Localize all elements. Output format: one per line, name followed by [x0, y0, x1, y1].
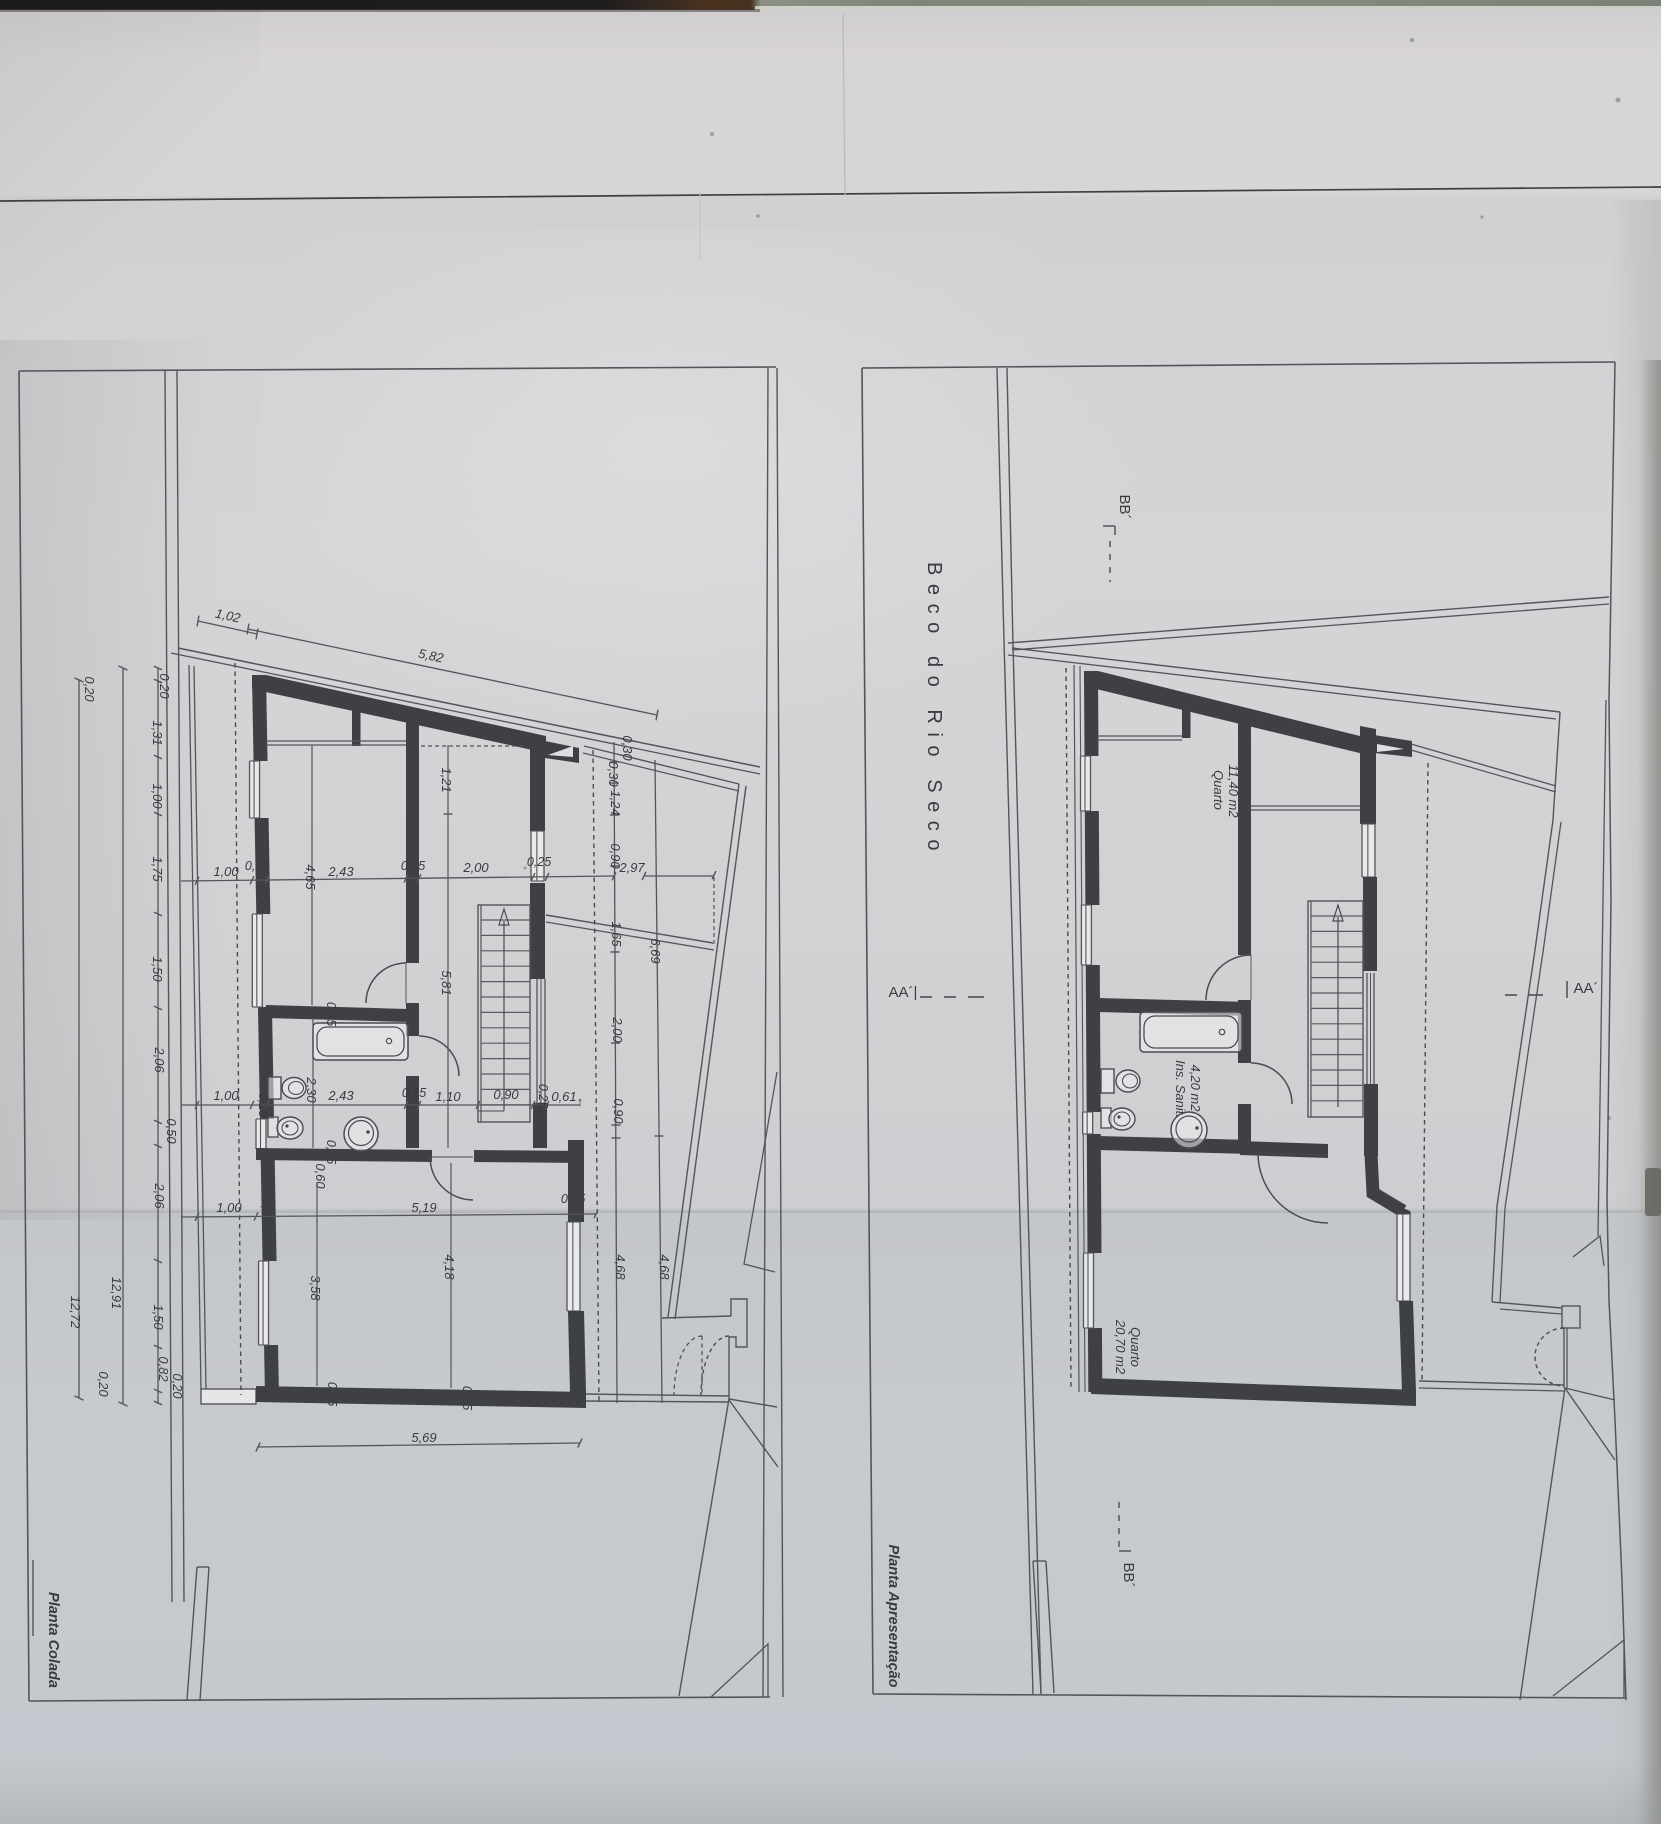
- svg-text:0,25: 0,25: [256, 1093, 270, 1117]
- svg-text:Quarto: Quarto: [1128, 1327, 1143, 1367]
- svg-text:Planta Apresentação: Planta Apresentação: [885, 1545, 901, 1688]
- svg-text:2,00: 2,00: [462, 860, 489, 875]
- svg-text:5,19: 5,19: [411, 1200, 436, 1215]
- svg-text:0,90: 0,90: [611, 1098, 626, 1124]
- svg-text:0,20: 0,20: [96, 1371, 111, 1397]
- svg-text:0,25: 0,25: [561, 1192, 585, 1206]
- svg-text:Quarto: Quarto: [1211, 770, 1226, 810]
- svg-text:1,00: 1,00: [213, 864, 239, 879]
- svg-text:AA´|: AA´|: [889, 984, 918, 1001]
- svg-text:0,82: 0,82: [156, 1356, 171, 1382]
- svg-text:2,06: 2,06: [152, 1182, 167, 1209]
- svg-text:2,06: 2,06: [152, 1046, 167, 1073]
- svg-text:1,50: 1,50: [151, 1304, 166, 1330]
- svg-text:20,70 m2: 20,70 m2: [1113, 1319, 1128, 1375]
- svg-text:1,00: 1,00: [213, 1088, 239, 1103]
- svg-text:BB´: BB´: [1120, 1562, 1137, 1587]
- svg-text:12,91: 12,91: [109, 1277, 124, 1310]
- svg-text:4,20 m2: 4,20 m2: [1188, 1065, 1203, 1113]
- svg-text:0,25: 0,25: [536, 1084, 550, 1108]
- svg-text:2,43: 2,43: [327, 864, 354, 879]
- svg-text:5,81: 5,81: [439, 970, 454, 995]
- svg-text:Planta Colada: Planta Colada: [45, 1592, 61, 1688]
- svg-text:4,68: 4,68: [613, 1254, 628, 1280]
- svg-text:1,02: 1,02: [214, 606, 243, 626]
- svg-text:0,25: 0,25: [245, 859, 269, 873]
- svg-text:4,18: 4,18: [442, 1254, 457, 1280]
- svg-text:0,15: 0,15: [324, 1002, 338, 1026]
- svg-text:1,00: 1,00: [150, 783, 165, 809]
- svg-text:1,24: 1,24: [608, 790, 623, 815]
- svg-text:0,90: 0,90: [493, 1087, 519, 1102]
- svg-text:1,10: 1,10: [435, 1089, 461, 1104]
- svg-text:0,20: 0,20: [157, 673, 172, 699]
- svg-text:0,30: 0,30: [606, 761, 621, 787]
- svg-text:0,25: 0,25: [325, 1382, 339, 1406]
- svg-text:0,60: 0,60: [313, 1163, 328, 1189]
- svg-text:B e c o d o R i o S e c: B e c o d o R i o S e c o: [923, 562, 945, 852]
- svg-text:0,20: 0,20: [170, 1373, 185, 1399]
- svg-text:0,25: 0,25: [460, 1386, 474, 1410]
- svg-text:5,69: 5,69: [411, 1430, 436, 1445]
- svg-text:0,25: 0,25: [527, 855, 551, 869]
- svg-text:AA´: AA´: [1573, 980, 1598, 997]
- svg-text:2,00: 2,00: [610, 1016, 625, 1043]
- svg-text:0,15: 0,15: [401, 859, 425, 873]
- svg-text:↑: ↑: [577, 1094, 584, 1109]
- svg-text:1,75: 1,75: [150, 856, 165, 882]
- svg-text:12,72: 12,72: [68, 1296, 83, 1329]
- svg-text:3,58: 3,58: [308, 1275, 323, 1301]
- svg-text:1,50: 1,50: [150, 956, 165, 982]
- svg-text:0,25: 0,25: [259, 1199, 273, 1223]
- svg-text:5,82: 5,82: [417, 646, 446, 666]
- svg-text:11,40 m2: 11,40 m2: [1226, 764, 1241, 818]
- svg-text:BB´: BB´: [1116, 494, 1133, 519]
- svg-text:0,15: 0,15: [402, 1086, 426, 1100]
- svg-text:0,90: 0,90: [608, 843, 623, 869]
- svg-text:4,65: 4,65: [303, 864, 318, 890]
- svg-text:2,43: 2,43: [327, 1088, 354, 1103]
- svg-text:0,20: 0,20: [82, 676, 97, 702]
- svg-text:6,69: 6,69: [648, 938, 663, 963]
- svg-text:0,15: 0,15: [324, 1140, 338, 1164]
- svg-text:0,50: 0,50: [164, 1118, 179, 1144]
- svg-text:1,00: 1,00: [216, 1200, 242, 1215]
- svg-text:4,68: 4,68: [657, 1254, 672, 1280]
- svg-text:2,30: 2,30: [304, 1076, 319, 1103]
- svg-text:1,65: 1,65: [609, 921, 624, 947]
- svg-text:1,31: 1,31: [150, 720, 165, 745]
- svg-text:0,30: 0,30: [620, 735, 635, 761]
- svg-text:0,61: 0,61: [551, 1089, 576, 1104]
- svg-text:Ins. Sanit.: Ins. Sanit.: [1173, 1060, 1188, 1118]
- svg-text:1,21: 1,21: [439, 767, 454, 792]
